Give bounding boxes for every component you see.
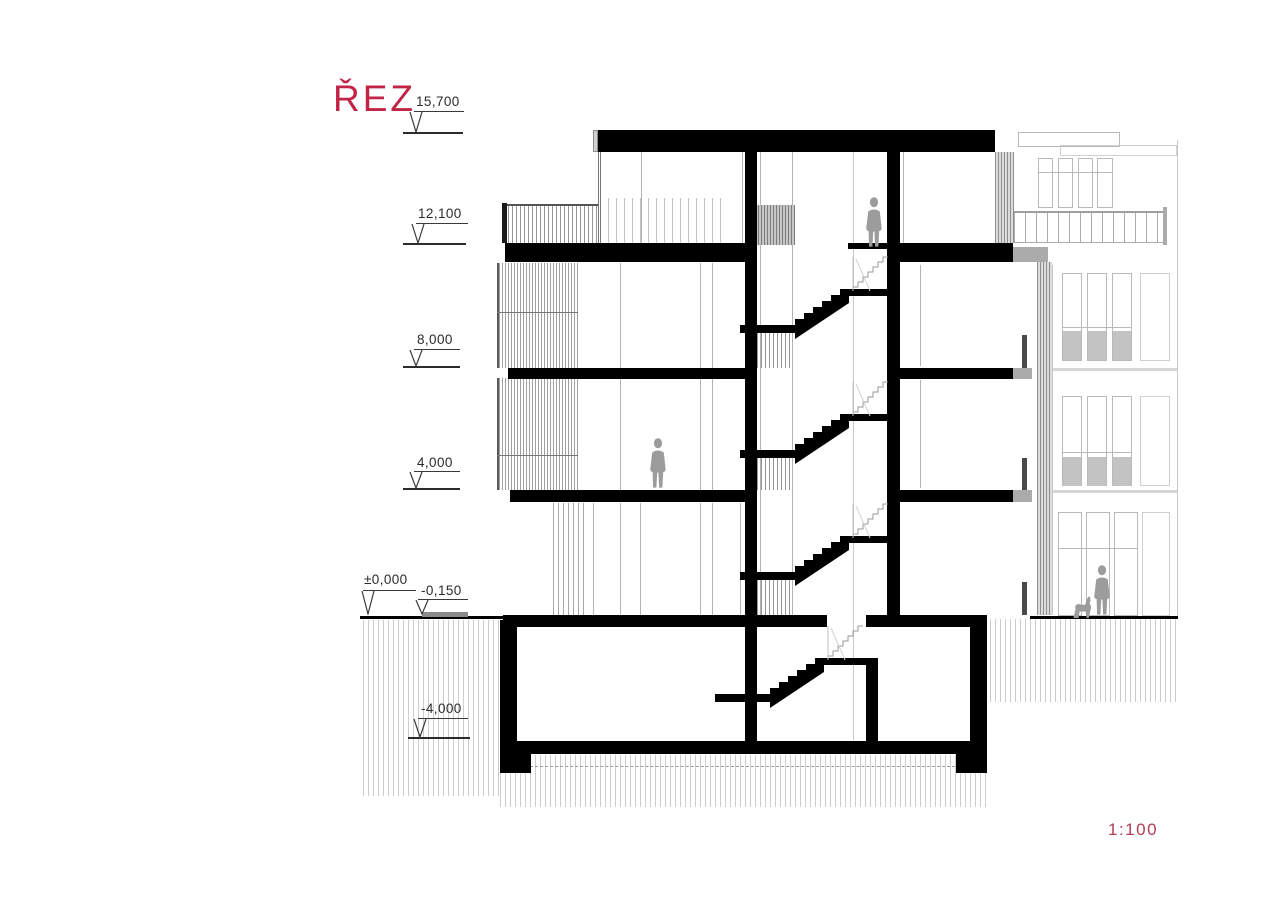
drawing-title: ŘEZ (333, 78, 416, 120)
earth-hatch-under-building (500, 755, 990, 807)
room2-partition-1 (620, 378, 621, 490)
level-arrow-icon (410, 224, 426, 244)
bg-building-left-edge (1052, 265, 1053, 615)
slab-8000-left (508, 368, 757, 379)
basement-wall-left (500, 620, 517, 741)
level-tick (403, 132, 463, 134)
level-tick (403, 366, 460, 368)
bg-b1-spandrel-2 (1088, 331, 1106, 360)
basement-floor-slab (500, 741, 987, 754)
level-label: 15,700 (416, 94, 460, 109)
bg-window-g-3 (1114, 512, 1138, 616)
core-stair-edge-line (853, 152, 854, 740)
basement-stair-wall (866, 658, 878, 741)
room2-partition-3 (712, 378, 713, 490)
slab-4000-right (887, 490, 1013, 502)
topfloor-partition-3 (903, 152, 904, 243)
level-tick (408, 737, 470, 739)
level-label: 4,000 (417, 455, 453, 470)
room2-partition-2 (700, 378, 701, 490)
level-label: 8,000 (417, 332, 453, 347)
bg-window-top-3 (1078, 158, 1093, 208)
level-arrow-icon (408, 350, 424, 367)
stair-outline-basement (828, 626, 863, 660)
window-sill-bar-3 (1022, 582, 1027, 615)
topfloor-glass-wall (600, 198, 722, 243)
foundation-pad-left (500, 753, 531, 773)
stair-outline-level1 (853, 504, 888, 538)
groundfloor-line-5 (712, 503, 713, 615)
bg-parapet-lower (1060, 145, 1177, 156)
level-arrow-icon (408, 112, 424, 133)
bg-window-g-2 (1086, 512, 1110, 616)
ground-line-right (1030, 616, 1178, 619)
room-right-partition-1 (920, 265, 921, 366)
stair-flight-level1 (740, 536, 900, 586)
stair-outline-level2 (853, 382, 888, 416)
slab-4000-endcap (1013, 490, 1032, 502)
scale-label: 1:100 (1108, 820, 1158, 840)
level-arrow-icon (414, 600, 430, 615)
level-tick (403, 488, 460, 490)
bg-window-b1-partial (1140, 273, 1170, 361)
stair-railing-level1 (757, 580, 793, 615)
section-drawing-canvas: ŘEZ 1:100 (0, 0, 1287, 909)
topfloor-partition-1 (641, 152, 642, 243)
stair-flight-level2 (740, 414, 900, 464)
bg-window-top-transom (1038, 172, 1113, 173)
foundation-dashed-line (520, 766, 965, 767)
curtainwall-mullion-main (1037, 262, 1052, 615)
slab-12100-right (898, 243, 1013, 262)
bg-balustrade-endpost (1163, 207, 1167, 245)
groundfloor-line-1 (593, 503, 594, 615)
level-label: ±0,000 (364, 572, 408, 587)
bg-window-g-partial (1142, 512, 1170, 616)
facade-louvers-band-3 (497, 263, 578, 368)
window-sill-bar-2 (1022, 458, 1027, 490)
stair-outline-level3 (853, 257, 888, 291)
slab-8000-endcap (1013, 368, 1032, 379)
topfloor-partition-2 (742, 152, 743, 243)
person-figure-stairs (866, 197, 881, 246)
facade-louver-frame-3 (497, 312, 578, 313)
groundfloor-line-4 (700, 503, 701, 615)
basement-wall-right (970, 615, 987, 741)
room-right-partition-2 (920, 380, 921, 488)
level-label: -0,150 (421, 583, 462, 598)
person-figure-floor2 (650, 438, 665, 487)
level-tick (403, 243, 466, 245)
terrace-railing-post (502, 203, 507, 243)
bg-floorline-1 (1052, 368, 1178, 371)
bg-window-top-4 (1097, 158, 1113, 208)
level-arrow-icon (360, 591, 376, 615)
storefront-glazing (553, 503, 585, 615)
bg-b1-spandrel-3 (1113, 331, 1131, 360)
slab-12100-endblock (1013, 247, 1048, 262)
bg-b2-spandrel-1 (1063, 457, 1081, 486)
slab-8000-right (887, 368, 1013, 379)
stair-railing-topfloor (755, 205, 795, 245)
ground-slab-left (503, 615, 827, 627)
facade-louvers-band-2 (497, 378, 578, 490)
bg-b2-spandrel-2 (1088, 457, 1106, 486)
level-arrow-icon (408, 472, 424, 489)
level-label: -4,000 (421, 701, 462, 716)
stair-railing-level2 (757, 458, 793, 490)
window-sill-bar-1 (1022, 335, 1027, 368)
stair-railing-level3 (757, 333, 793, 368)
foundation-pad-right (956, 753, 987, 773)
groundfloor-line-6 (740, 503, 741, 615)
stair-flight-level3 (740, 289, 900, 339)
level-label: 12,100 (418, 206, 462, 221)
bg-b2-spandrel-3 (1113, 457, 1131, 486)
bg-g-transom (1058, 548, 1138, 549)
roof-slab (598, 130, 995, 152)
room3-partition-2 (700, 263, 701, 368)
level-arrow-icon (412, 719, 428, 738)
facade-louver-frame-2 (497, 455, 578, 456)
ground-slab-right (866, 615, 987, 627)
topfloor-left-wall (598, 152, 601, 243)
bg-window-b2-partial (1140, 396, 1170, 486)
stair-core-wall-right (887, 152, 900, 618)
bg-floorline-2 (1052, 490, 1178, 493)
groundfloor-line-3 (640, 503, 641, 615)
bg-b1-transom (1062, 327, 1132, 328)
slab-12100-left (505, 243, 757, 262)
stair-core-wall-left (745, 152, 757, 741)
bg-window-top-1 (1038, 158, 1053, 208)
room3-partition-3 (712, 263, 713, 368)
terrace-railing-balusters (508, 206, 598, 243)
bg-window-g-1 (1058, 512, 1082, 616)
groundfloor-line-2 (620, 503, 621, 615)
earth-hatch-right (990, 619, 1178, 702)
bg-window-top-2 (1058, 158, 1073, 208)
stair-flight-basement (715, 658, 875, 708)
room3-partition-1 (620, 263, 621, 368)
slab-4000-left (510, 490, 757, 502)
bg-terrace-balustrade (1014, 211, 1167, 243)
bg-building-edge (1177, 140, 1178, 617)
bg-b2-transom (1062, 452, 1132, 453)
bg-b1-spandrel-1 (1063, 331, 1081, 360)
curtainwall-mullion-topfloor (995, 152, 1014, 243)
